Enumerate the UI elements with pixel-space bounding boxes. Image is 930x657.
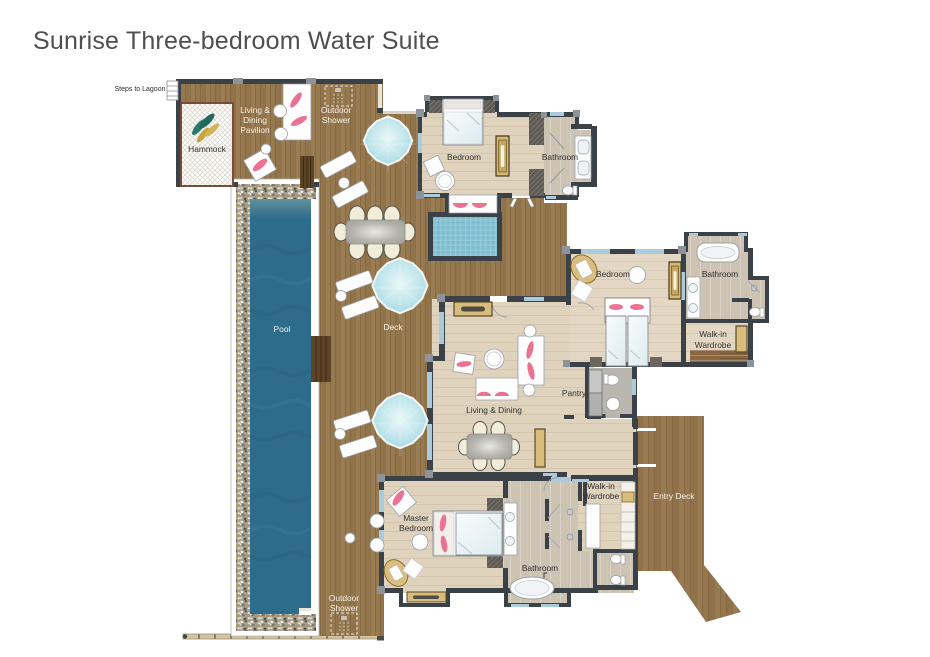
svg-text:Sunrise Three-bedroom Water Su: Sunrise Three-bedroom Water Suite <box>33 27 440 55</box>
svg-text:Walk-in: Walk-in <box>587 481 615 491</box>
svg-text:Bathroom: Bathroom <box>522 563 558 573</box>
svg-text:Shower: Shower <box>322 115 351 125</box>
svg-text:Entry Deck: Entry Deck <box>654 491 696 501</box>
svg-text:Living &: Living & <box>240 105 270 115</box>
svg-text:Wardrobe: Wardrobe <box>695 340 732 350</box>
svg-text:Outdoor: Outdoor <box>321 105 351 115</box>
svg-text:Bedroom: Bedroom <box>596 269 630 279</box>
svg-text:Bathroom: Bathroom <box>702 269 738 279</box>
svg-text:Steps to Lagoon: Steps to Lagoon <box>115 86 166 93</box>
svg-text:Master: Master <box>403 513 429 523</box>
svg-text:Bathroom: Bathroom <box>542 152 578 162</box>
svg-text:Walk-in: Walk-in <box>699 329 727 339</box>
svg-text:Pavilion: Pavilion <box>240 125 270 135</box>
svg-text:Deck: Deck <box>383 322 403 332</box>
svg-text:Shower: Shower <box>330 603 359 613</box>
svg-text:Pantry: Pantry <box>562 388 587 398</box>
svg-text:Wardrobe: Wardrobe <box>583 491 620 501</box>
svg-text:Dining: Dining <box>243 115 267 125</box>
svg-text:Outdoor: Outdoor <box>329 593 359 603</box>
svg-text:Pool: Pool <box>273 324 290 334</box>
svg-text:Bedroom: Bedroom <box>447 152 481 162</box>
svg-text:Living & Dining: Living & Dining <box>466 405 522 415</box>
svg-text:Hammock: Hammock <box>188 144 227 154</box>
svg-text:Bedroom: Bedroom <box>399 523 433 533</box>
